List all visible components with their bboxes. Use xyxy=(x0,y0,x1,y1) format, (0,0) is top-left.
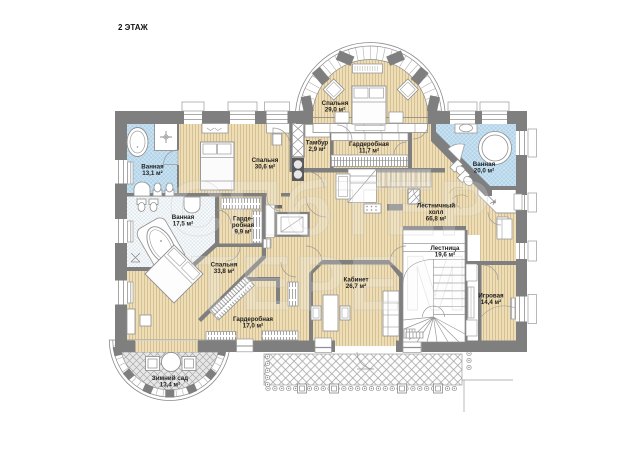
svg-text:2,9 м²: 2,9 м² xyxy=(309,146,326,153)
svg-text:30,6 м²: 30,6 м² xyxy=(255,164,275,171)
svg-text:9,9 м²: 9,9 м² xyxy=(235,229,252,236)
svg-text:2 ЭТАЖ: 2 ЭТАЖ xyxy=(118,23,149,32)
svg-text:11,7 м²: 11,7 м² xyxy=(359,148,379,155)
svg-text:14,4 м²: 14,4 м² xyxy=(481,299,501,306)
svg-text:ТЕРЕМ: ТЕРЕМ xyxy=(191,239,470,327)
svg-text:13,4 м²: 13,4 м² xyxy=(160,382,180,389)
svg-text:17,0 м²: 17,0 м² xyxy=(243,323,263,330)
svg-text:13,1 м²: 13,1 м² xyxy=(142,170,162,177)
svg-text:66,8 м²: 66,8 м² xyxy=(426,216,446,223)
svg-text:17,5 м²: 17,5 м² xyxy=(173,221,193,228)
svg-text:20,0 м²: 20,0 м² xyxy=(474,168,494,175)
svg-text:26,7 м²: 26,7 м² xyxy=(346,283,366,290)
svg-text:29,0 м²: 29,0 м² xyxy=(325,107,345,114)
svg-text:19,6 м²: 19,6 м² xyxy=(435,252,455,259)
svg-text:33,8 м²: 33,8 м² xyxy=(214,268,234,275)
